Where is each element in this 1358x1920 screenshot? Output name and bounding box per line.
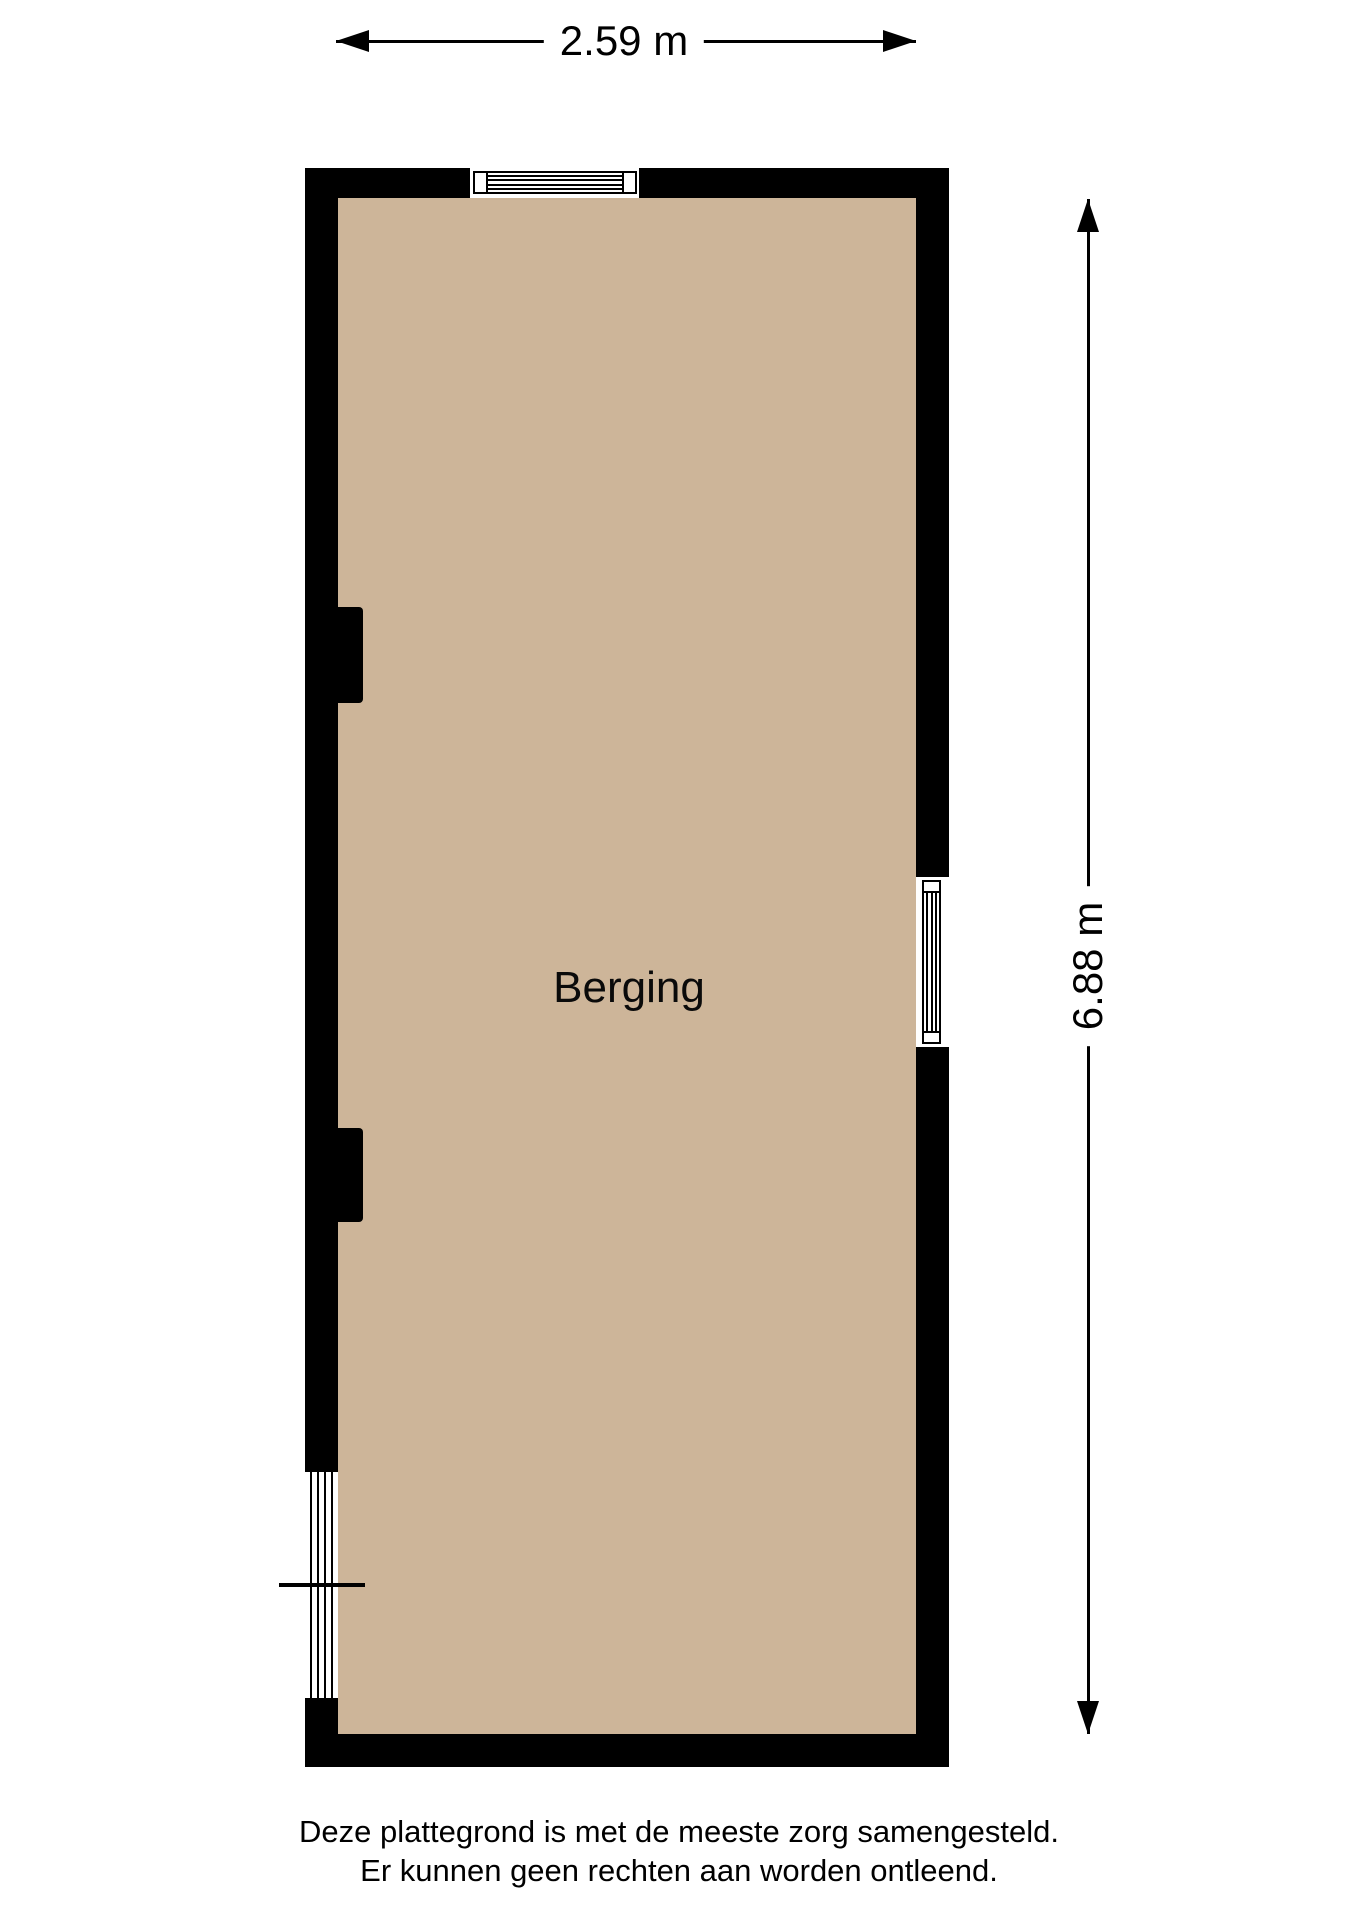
room-label: Berging xyxy=(553,963,705,1013)
window-panes xyxy=(924,893,939,1031)
window-top xyxy=(470,168,639,198)
window-cap xyxy=(924,1031,939,1042)
arrow-left-icon xyxy=(336,30,369,52)
window-cap xyxy=(475,173,488,192)
arrow-up-icon xyxy=(1077,199,1099,232)
pane-line xyxy=(488,188,622,190)
disclaimer: Deze plattegrond is met de meeste zorg s… xyxy=(0,1812,1358,1890)
window-divider-tick xyxy=(279,1583,365,1587)
window-right xyxy=(916,877,949,1047)
width-dimension-label: 2.59 m xyxy=(544,18,704,64)
pane-line xyxy=(488,179,622,181)
wall-protrusion-upper xyxy=(338,607,363,703)
pane-line xyxy=(931,893,933,1031)
disclaimer-line-1: Deze plattegrond is met de meeste zorg s… xyxy=(0,1812,1358,1851)
pane-line xyxy=(935,893,937,1031)
window-frame xyxy=(473,171,637,194)
wall-protrusion-lower xyxy=(338,1128,363,1222)
window-cap xyxy=(924,882,939,893)
pane-line xyxy=(488,175,622,177)
arrow-right-icon xyxy=(883,30,916,52)
height-dimension-label: 6.88 m xyxy=(1065,886,1111,1046)
disclaimer-line-2: Er kunnen geen rechten aan worden ontlee… xyxy=(0,1851,1358,1890)
pane-line xyxy=(488,184,622,186)
window-frame xyxy=(922,880,941,1044)
window-cap xyxy=(622,173,635,192)
pane-line xyxy=(926,893,928,1031)
window-panes xyxy=(488,173,622,192)
arrow-down-icon xyxy=(1077,1701,1099,1734)
floor-plan-page: 2.59 m 6.88 m xyxy=(0,0,1358,1920)
